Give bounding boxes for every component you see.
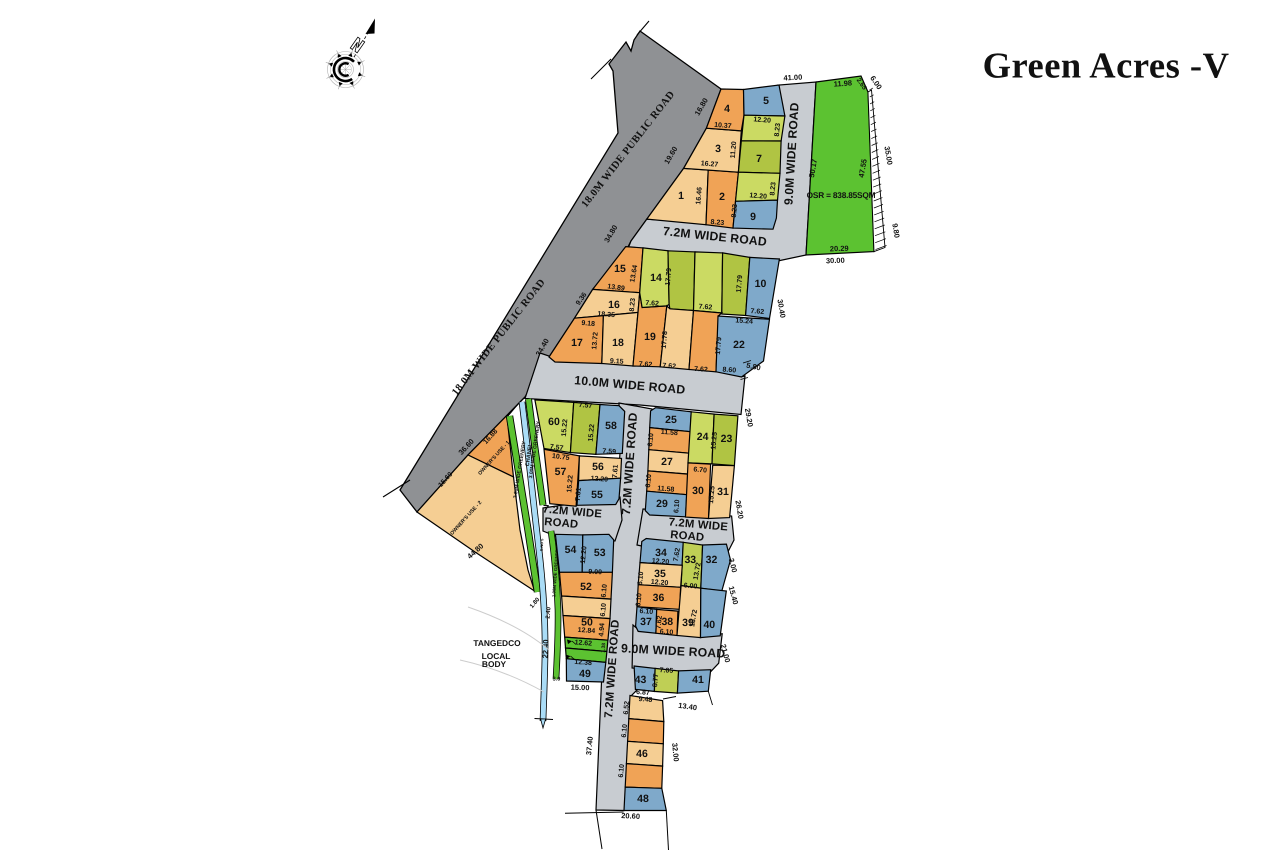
- svg-text:15: 15: [614, 263, 626, 275]
- svg-text:6.10: 6.10: [647, 433, 655, 447]
- svg-text:49: 49: [579, 668, 591, 680]
- svg-text:55: 55: [591, 489, 603, 501]
- svg-text:6.70: 6.70: [693, 466, 707, 474]
- svg-text:6.00: 6.00: [683, 582, 697, 590]
- svg-text:8.60: 8.60: [722, 367, 736, 375]
- svg-text:11.58: 11.58: [657, 485, 675, 493]
- svg-text:11.98: 11.98: [833, 78, 852, 88]
- svg-text:2: 2: [719, 191, 725, 203]
- svg-text:7.59: 7.59: [602, 448, 616, 456]
- svg-text:7.62: 7.62: [694, 366, 708, 374]
- svg-text:9.15: 9.15: [610, 358, 624, 366]
- svg-text:7.62: 7.62: [698, 304, 712, 312]
- svg-text:58: 58: [605, 420, 617, 432]
- svg-text:46: 46: [636, 748, 648, 760]
- svg-text:11.20: 11.20: [730, 141, 738, 159]
- svg-text:32.00: 32.00: [670, 743, 681, 762]
- svg-text:25: 25: [665, 414, 677, 426]
- svg-text:8.23: 8.23: [731, 204, 739, 218]
- svg-text:7.61: 7.61: [612, 464, 620, 478]
- svg-text:17: 17: [571, 337, 583, 349]
- svg-text:6.52: 6.52: [623, 701, 631, 715]
- svg-text:7.62: 7.62: [662, 363, 676, 371]
- svg-text:3.0: 3.0: [553, 677, 561, 683]
- svg-text:4: 4: [724, 103, 730, 115]
- svg-text:9.48: 9.48: [638, 696, 652, 704]
- svg-text:6.10: 6.10: [639, 608, 653, 616]
- svg-text:6.10: 6.10: [637, 571, 645, 585]
- svg-text:9.18: 9.18: [581, 320, 595, 328]
- svg-text:2.40: 2.40: [545, 606, 553, 619]
- svg-text:12.62: 12.62: [574, 639, 592, 647]
- svg-text:48: 48: [637, 793, 649, 805]
- svg-text:6.10: 6.10: [621, 724, 629, 738]
- svg-text:7.61: 7.61: [575, 487, 583, 501]
- svg-text:5: 5: [763, 95, 769, 107]
- svg-text:16: 16: [608, 299, 620, 311]
- svg-text:19: 19: [644, 331, 656, 343]
- svg-text:12.84: 12.84: [577, 627, 595, 635]
- svg-text:7.57: 7.57: [578, 402, 592, 410]
- svg-text:BODY: BODY: [482, 659, 507, 669]
- svg-text:8.23: 8.23: [629, 298, 637, 312]
- svg-text:20.29: 20.29: [830, 244, 849, 254]
- svg-text:7.62: 7.62: [645, 300, 659, 308]
- svg-text:6.10: 6.10: [673, 499, 681, 513]
- svg-text:30.00: 30.00: [826, 256, 845, 266]
- svg-text:9: 9: [750, 211, 756, 223]
- svg-text:8.23: 8.23: [769, 182, 777, 196]
- svg-text:43: 43: [635, 674, 647, 686]
- svg-text:6.10: 6.10: [659, 629, 673, 637]
- svg-text:7.05: 7.05: [659, 667, 673, 675]
- svg-text:10: 10: [755, 278, 767, 290]
- svg-text:24: 24: [697, 431, 709, 443]
- svg-text:Green Acres -V: Green Acres -V: [983, 45, 1230, 86]
- svg-text:8.23: 8.23: [710, 219, 724, 227]
- svg-text:32: 32: [706, 554, 718, 566]
- svg-text:57: 57: [555, 466, 567, 478]
- svg-text:8.23: 8.23: [774, 123, 782, 137]
- svg-text:31: 31: [717, 486, 729, 498]
- svg-text:41: 41: [692, 674, 704, 686]
- svg-text:15.00: 15.00: [571, 683, 590, 693]
- svg-text:22.40: 22.40: [541, 639, 551, 658]
- svg-text:60: 60: [548, 416, 560, 428]
- svg-text:8.77: 8.77: [652, 673, 660, 687]
- svg-text:20.60: 20.60: [621, 811, 640, 821]
- svg-text:53: 53: [594, 547, 606, 559]
- svg-text:9.00: 9.00: [588, 569, 602, 577]
- svg-text:7.62: 7.62: [638, 361, 652, 369]
- svg-text:29: 29: [656, 498, 668, 510]
- svg-text:54: 54: [565, 544, 577, 556]
- svg-text:7: 7: [756, 153, 762, 165]
- svg-text:6.10: 6.10: [635, 593, 643, 607]
- svg-text:37.40: 37.40: [584, 736, 595, 755]
- svg-text:11.58: 11.58: [660, 429, 678, 437]
- svg-text:52: 52: [580, 581, 592, 593]
- svg-text:41.00: 41.00: [783, 73, 802, 83]
- svg-text:1: 1: [678, 190, 684, 202]
- svg-text:7.62: 7.62: [656, 615, 664, 629]
- svg-text:37: 37: [640, 616, 652, 628]
- svg-text:6.10: 6.10: [601, 584, 609, 598]
- svg-text:4.94: 4.94: [598, 623, 606, 637]
- svg-text:23: 23: [721, 433, 733, 445]
- svg-text:12.20: 12.20: [590, 475, 608, 483]
- svg-text:36: 36: [653, 592, 665, 604]
- svg-text:15.24: 15.24: [735, 317, 753, 325]
- svg-text:7.62: 7.62: [750, 308, 764, 316]
- svg-text:6.10: 6.10: [600, 603, 608, 617]
- svg-text:18: 18: [612, 337, 624, 349]
- svg-text:56: 56: [592, 461, 604, 473]
- svg-text:6.10: 6.10: [618, 764, 626, 778]
- svg-text:22: 22: [733, 339, 745, 351]
- svg-text:TANGEDCO: TANGEDCO: [473, 638, 521, 648]
- svg-text:14: 14: [650, 272, 662, 284]
- svg-text:1.38: 1.38: [600, 643, 607, 653]
- svg-text:30: 30: [692, 485, 704, 497]
- svg-text:27: 27: [661, 456, 673, 468]
- svg-text:6.10: 6.10: [645, 474, 653, 488]
- svg-text:40: 40: [703, 619, 715, 631]
- svg-text:12.38: 12.38: [574, 659, 592, 667]
- svg-text:3: 3: [715, 143, 721, 155]
- svg-text:OSR = 838.85SQM: OSR = 838.85SQM: [807, 190, 876, 200]
